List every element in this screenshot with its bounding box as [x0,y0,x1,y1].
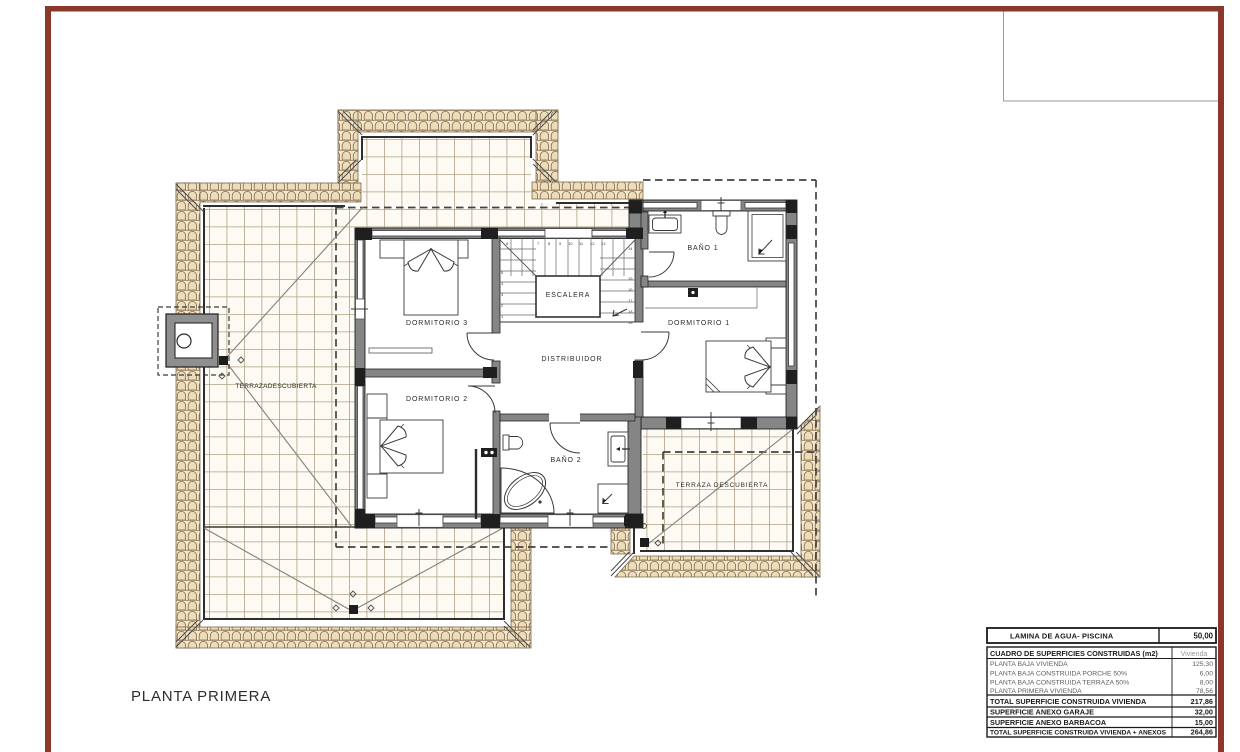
svg-text:8,00: 8,00 [1200,680,1213,687]
svg-text:SUPERFICIE ANEXO GARAJE: SUPERFICIE ANEXO GARAJE [990,708,1094,717]
svg-text:BAÑO 1: BAÑO 1 [687,243,718,252]
svg-text:217,86: 217,86 [1191,697,1213,706]
svg-text:PLANTA BAJA CONSTRUIDA TERRAZA: PLANTA BAJA CONSTRUIDA TERRAZA 50% [990,680,1129,687]
svg-text:264,86: 264,86 [1191,728,1213,737]
svg-text:13: 13 [601,241,606,246]
svg-text:PLANTA PRIMERA VIVIENDA: PLANTA PRIMERA VIVIENDA [990,688,1082,695]
svg-text:DORMITORIO 1: DORMITORIO 1 [668,320,730,327]
svg-text:12: 12 [590,241,595,246]
svg-text:TERRAZADESCUBIERTA: TERRAZADESCUBIERTA [235,383,317,390]
svg-text:DISTRIBUIDOR: DISTRIBUIDOR [542,356,603,363]
svg-text:CUADRO DE SUPERFICIES CONSTRUI: CUADRO DE SUPERFICIES CONSTRUIDAS (m2) [990,649,1158,658]
svg-text:16: 16 [628,287,633,292]
svg-text:PLANTA PRIMERA: PLANTA PRIMERA [131,688,271,705]
svg-text:PLANTA BAJA VIVIENDA: PLANTA BAJA VIVIENDA [990,661,1068,668]
svg-text:Vivienda: Vivienda [1181,651,1208,658]
svg-text:PLANTA BAJA CONSTRUIDA PORCHE: PLANTA BAJA CONSTRUIDA PORCHE 50% [990,671,1127,678]
svg-text:10: 10 [568,241,573,246]
svg-text:17: 17 [628,298,633,303]
svg-text:6,00: 6,00 [1200,671,1213,678]
svg-text:SUPERFICIE ANEXO BARBACOA: SUPERFICIE ANEXO BARBACOA [990,718,1107,727]
svg-text:ESCALERA: ESCALERA [546,292,591,299]
svg-text:DORMITORIO 2: DORMITORIO 2 [406,396,468,403]
svg-text:50,00: 50,00 [1193,632,1213,641]
svg-text:DORMITORIO 3: DORMITORIO 3 [406,320,468,327]
svg-text:15,00: 15,00 [1195,718,1213,727]
svg-text:14: 14 [628,246,633,251]
svg-text:TERRAZA DESCUBIERTA: TERRAZA DESCUBIERTA [676,482,769,489]
svg-text:18: 18 [628,309,633,314]
svg-text:78,56: 78,56 [1196,688,1213,695]
svg-text:LAMINA DE AGUA- PISCINA: LAMINA DE AGUA- PISCINA [1010,632,1114,641]
svg-text:TOTAL SUPERFICIE CONSTRUIDA VI: TOTAL SUPERFICIE CONSTRUIDA VIVIENDA [990,697,1147,706]
svg-text:TOTAL SUPERFICIE CONSTRUIDA VI: TOTAL SUPERFICIE CONSTRUIDA VIVIENDA + A… [990,730,1167,737]
svg-text:19: 19 [628,320,633,325]
svg-text:32,00: 32,00 [1195,708,1213,717]
svg-text:BAÑO 2: BAÑO 2 [550,455,581,464]
svg-text:15: 15 [628,276,633,281]
svg-text:125,30: 125,30 [1192,661,1213,668]
